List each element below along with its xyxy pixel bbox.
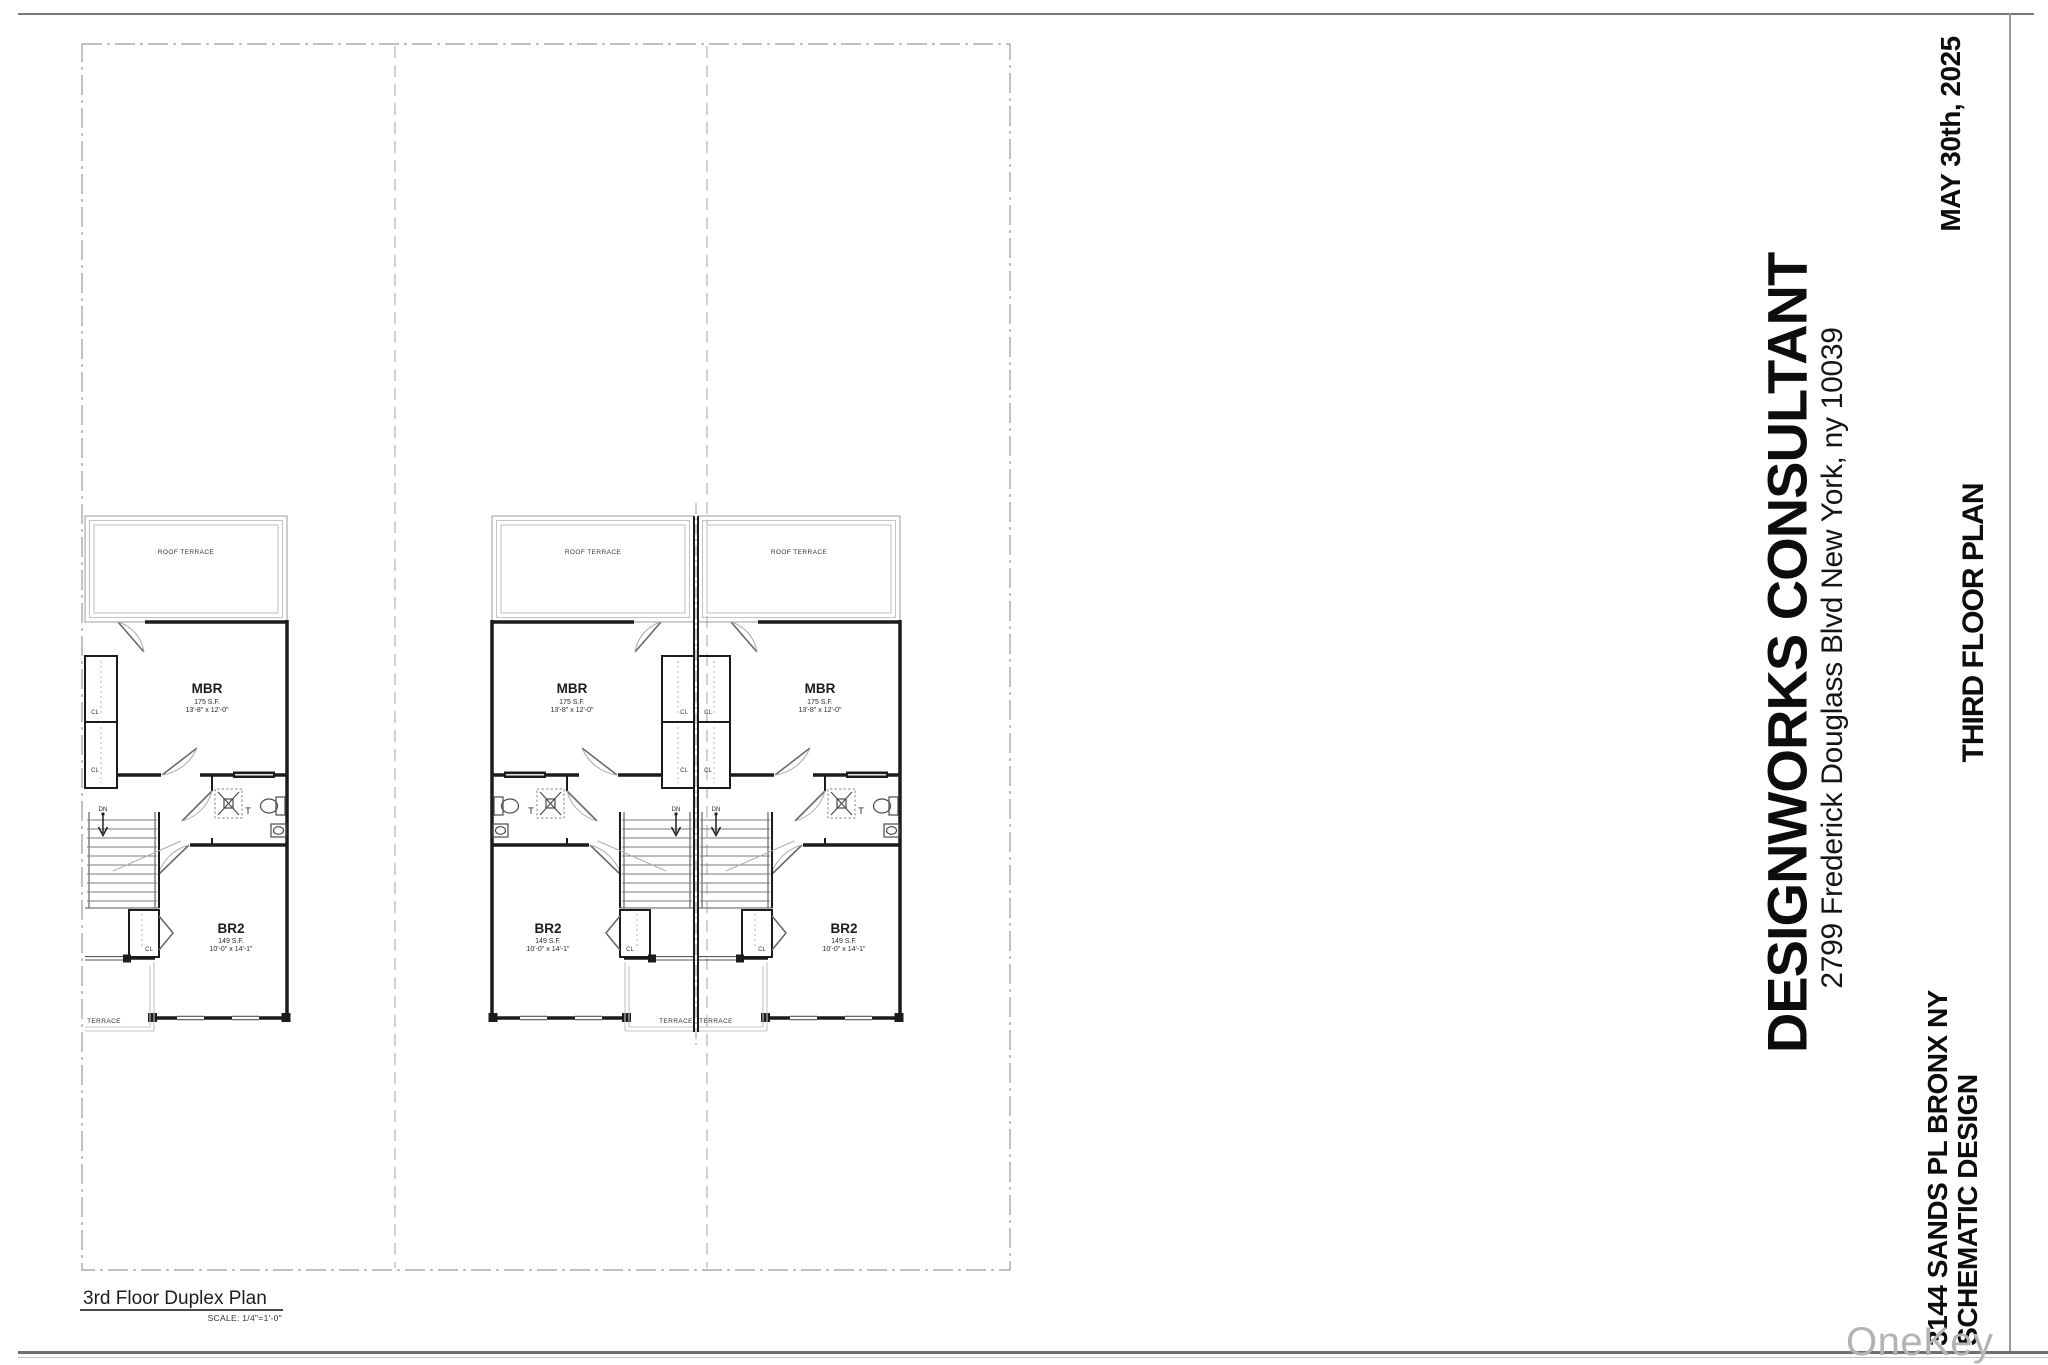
room-area: 175 S.F.: [559, 699, 585, 706]
drawing-title: 3rd Floor Duplex Plan: [83, 1288, 267, 1310]
room-area: 149 S.F.: [831, 938, 857, 945]
room-dims: 13'-8" x 12'-0": [550, 707, 594, 714]
room-dims: 10'-0" x 14'-1": [822, 946, 866, 953]
toilet-label: T: [858, 806, 864, 816]
firm-name: DESIGNWORKS CONSULTANT: [1755, 253, 1820, 1053]
room-label: BR2: [534, 921, 561, 936]
project-block: 3144 SANDS PL BRONX NY SCHEMATIC DESIGN: [1923, 990, 1983, 1346]
terrace-label: TERRACE: [659, 1018, 693, 1025]
closet-label: CL: [758, 947, 766, 953]
closet-label: CL: [145, 947, 153, 953]
room-dims: 10'-0" x 14'-1": [526, 946, 570, 953]
down-label: DN: [672, 807, 681, 813]
toilet-label: T: [528, 806, 534, 816]
room-dims: 13'-8" x 12'-0": [798, 707, 842, 714]
firm-address: 2799 Frederick Douglass Blvd New York, n…: [1816, 327, 1850, 988]
mls-watermark: OneKey MLS: [1846, 1320, 2048, 1365]
room-area: 149 S.F.: [535, 938, 561, 945]
terrace-label: TERRACE: [87, 1018, 121, 1025]
sheet-title: THIRD FLOOR PLAN: [1957, 484, 1991, 763]
room-label: ROOF TERRACE: [771, 549, 828, 556]
room-area: 175 S.F.: [807, 699, 833, 706]
party-wall: [694, 503, 698, 1045]
layout-frame: [82, 44, 1010, 1270]
drawing-scale: SCALE: 1/4"=1'-0": [160, 1313, 282, 1323]
toilet-label: T: [245, 806, 251, 816]
floor-plan-drawing: ROOF TERRACE MBR 175 S.F. 13'-8" x 12'-0…: [0, 0, 2048, 1365]
room-label: BR2: [830, 921, 857, 936]
sheet-date: MAY 30th, 2025: [1935, 36, 1967, 231]
unit-plan-duplex-left: [489, 516, 695, 1031]
closet-label: CL: [91, 768, 99, 774]
terrace-label: TERRACE: [699, 1018, 733, 1025]
closet-label: CL: [680, 768, 688, 774]
room-area: 175 S.F.: [194, 699, 220, 706]
room-label: ROOF TERRACE: [565, 549, 622, 556]
room-label: BR2: [217, 921, 244, 936]
closet-label: CL: [680, 710, 688, 716]
room-label: MBR: [192, 681, 223, 696]
down-label: DN: [712, 807, 721, 813]
project-name: 3144 SANDS PL BRONX NY: [1923, 990, 1953, 1346]
closet-label: CL: [91, 710, 99, 716]
drawing-sheet: ROOF TERRACE MBR 175 S.F. 13'-8" x 12'-0…: [0, 0, 2048, 1365]
room-label: MBR: [557, 681, 588, 696]
down-label: DN: [99, 807, 108, 813]
drawing-title-underline: [80, 1309, 283, 1311]
room-dims: 10'-0" x 14'-1": [209, 946, 253, 953]
room-dims: 13'-8" x 12'-0": [185, 707, 229, 714]
room-area: 149 S.F.: [218, 938, 244, 945]
room-label: ROOF TERRACE: [158, 549, 215, 556]
room-label: MBR: [805, 681, 836, 696]
closet-label: CL: [704, 710, 712, 716]
project-phase: SCHEMATIC DESIGN: [1953, 990, 1983, 1346]
closet-label: CL: [626, 947, 634, 953]
unit-plan-single: [85, 516, 291, 1031]
closet-label: CL: [704, 768, 712, 774]
unit-plan-duplex-right: [698, 516, 904, 1031]
